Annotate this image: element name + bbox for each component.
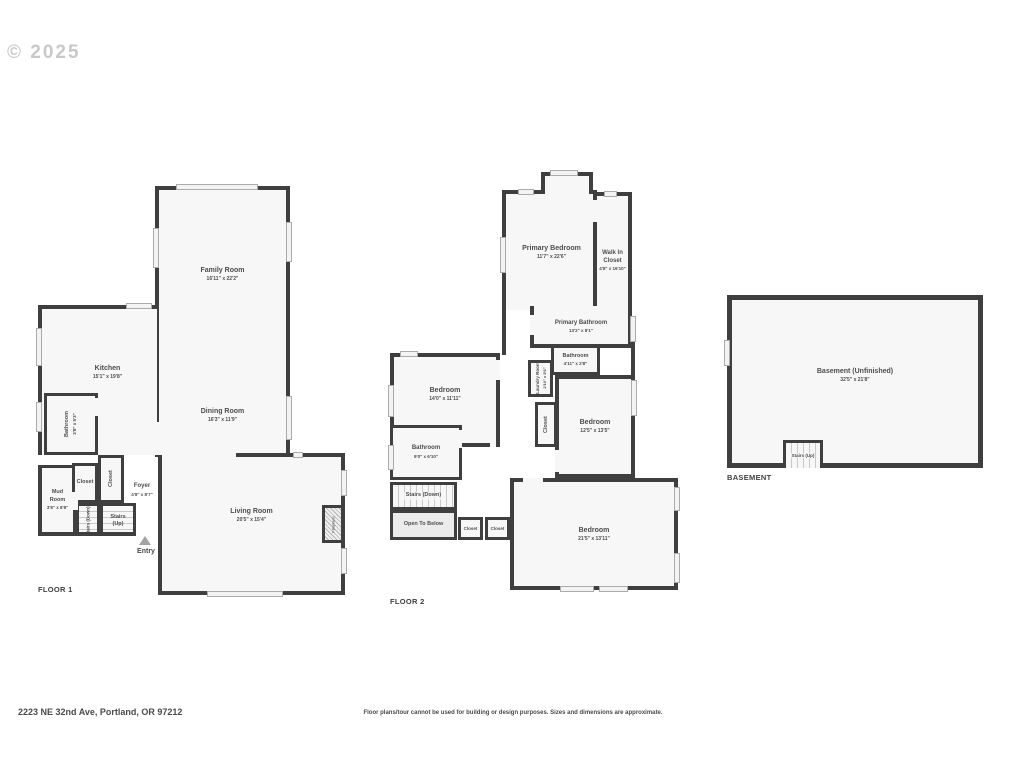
room-foyer: Foyer 4'8" x 8'7" [120, 483, 164, 498]
room-name: Primary Bathroom [555, 320, 607, 328]
floor2-label: FLOOR 2 [390, 597, 425, 606]
floor-plan-canvas: © 2025 Family Room 16'11" x 22'2" Dining… [0, 0, 1024, 768]
room-name: Open To Below [404, 521, 444, 528]
room-dims: 32'5" x 21'8" [817, 377, 893, 384]
room-name: Closet [107, 471, 114, 488]
wall-segment [502, 310, 506, 355]
room-closet-a-floor2: Closet [458, 517, 483, 540]
room-name: Closet [491, 526, 505, 532]
room-closet-hall-floor2: Closet [535, 402, 557, 447]
room-name: Dining Room [201, 407, 245, 416]
window [674, 487, 680, 511]
wall-segment [236, 453, 293, 457]
window [341, 470, 347, 496]
entry-arrow-icon [139, 536, 151, 545]
room-dims: 14'0" x 11'11" [429, 396, 461, 403]
door-opening [459, 430, 462, 448]
copyright-watermark: © 2025 [7, 42, 81, 64]
room-name: Bedroom [429, 386, 461, 395]
room-dims: 3'8" x 5'3" [72, 411, 78, 437]
door-opening [496, 360, 500, 380]
fireplace: Fireplace [322, 505, 344, 543]
room-dims: 13'2" x 8'1" [555, 328, 607, 334]
room-name: Living Room [230, 507, 272, 516]
room-bedroom-bottom: Bedroom 21'5" x 13'11" [510, 478, 678, 590]
room-name: Closet [77, 479, 94, 486]
basement-label: BASEMENT [727, 473, 772, 482]
window [293, 452, 303, 458]
window [604, 191, 617, 197]
room-dims: 12'5" x 13'5" [580, 428, 611, 435]
window [341, 548, 347, 574]
window [388, 385, 394, 417]
room-dims: 16'3" x 11'9" [201, 417, 245, 424]
window [560, 586, 594, 592]
room-dims: 4'11" x 2'8" [563, 361, 589, 367]
room-dims: 20'5" x 15'4" [230, 517, 272, 524]
room-name: Basement (Unfinished) [817, 367, 893, 376]
room-name: Mud Room [45, 489, 71, 503]
wall-segment [462, 443, 490, 447]
room-dims: 2'10" x 5'6" [541, 363, 546, 395]
room-dining-room: Dining Room 16'3" x 11'9" [155, 386, 290, 457]
room-dims: 21'5" x 13'11" [578, 536, 610, 543]
property-address: 2223 NE 32nd Ave, Portland, OR 97212 [18, 707, 182, 717]
room-living-room: Living Room 20'5" x 15'4" [158, 455, 345, 595]
room-dims: 4'8" x 16'10" [598, 266, 628, 272]
room-name: Family Room [201, 266, 245, 275]
window [286, 222, 292, 262]
door-opening [593, 200, 597, 222]
window [724, 340, 730, 366]
room-dims: 3'8" x 8'8" [45, 505, 71, 511]
room-closet-b-floor2: Closet [485, 517, 510, 540]
room-name: Bathroom [64, 411, 71, 437]
room-dims: 11'7" x 22'6" [522, 254, 581, 261]
room-dims: 4'8" x 8'7" [120, 492, 164, 498]
door-opening [155, 422, 159, 455]
room-name: Closet [464, 526, 478, 532]
room-dims: 15'1" x 19'8" [93, 374, 122, 381]
floor1-label: FLOOR 1 [38, 585, 73, 594]
door-opening [545, 190, 589, 194]
room-bedroom-right: Bedroom 12'5" x 13'5" [555, 375, 635, 478]
door-opening [93, 398, 99, 416]
room-name: Stairs (Up) [106, 514, 130, 528]
room-name: Stairs (Up) [792, 453, 815, 459]
room-name: Closet [542, 416, 549, 433]
door-opening [523, 478, 543, 482]
window [400, 351, 418, 357]
room-name: Bedroom [578, 526, 610, 535]
room-name: Primary Bedroom [522, 244, 581, 253]
window [36, 402, 42, 432]
window [388, 445, 394, 470]
door-opening [72, 492, 78, 510]
entry-label: Entry [128, 548, 164, 555]
window [36, 328, 42, 366]
room-name: Kitchen [93, 364, 122, 373]
window [500, 237, 506, 273]
room-stairs-up-basement: Stairs (Up) [783, 440, 823, 468]
room-bathroom-small-floor2: Bathroom 4'11" x 2'8" [551, 348, 600, 375]
room-bathroom-floor1: Bathroom 3'8" x 5'3" [44, 393, 98, 455]
wall-segment [301, 453, 345, 457]
fireplace-label: Fireplace [331, 516, 336, 532]
room-open-to-below: Open To Below [390, 510, 457, 540]
room-name: Foyer [120, 483, 164, 491]
room-dims: 16'11" x 22'2" [201, 276, 245, 283]
window [176, 184, 258, 190]
room-name: Bathroom [563, 353, 589, 360]
disclaimer-text: Floor plans/tour cannot be used for buil… [348, 710, 678, 716]
room-dims: 9'0" x 6'10" [412, 454, 440, 460]
room-name: Bedroom [580, 418, 611, 427]
room-bathroom-left-floor2: Bathroom 9'0" x 6'10" [390, 425, 462, 480]
window [518, 189, 534, 195]
room-name: Stairs (Down) [406, 492, 441, 499]
window [674, 553, 680, 583]
window [631, 380, 637, 416]
window [286, 396, 292, 440]
window [207, 591, 283, 597]
window [599, 586, 628, 592]
room-laundry: Laundry Room 2'10" x 5'6" [528, 360, 553, 397]
room-primary-bedroom: Primary Bedroom 11'7" x 22'6" [502, 190, 597, 310]
room-mud-room: Mud Room 3'8" x 8'8" [38, 465, 76, 536]
window [126, 303, 152, 309]
wall-segment [76, 532, 133, 536]
room-name: Walk In Closet [598, 250, 628, 266]
room-name: Laundry Room [534, 363, 540, 395]
room-primary-bathroom: Primary Bathroom 13'2" x 8'1" [530, 306, 632, 348]
window [153, 228, 159, 268]
window [550, 170, 578, 176]
room-family-room: Family Room 16'11" x 22'2" [155, 186, 290, 386]
door-opening [530, 315, 534, 335]
window [630, 316, 636, 342]
room-stairs-down-floor2: Stairs (Down) [390, 482, 457, 510]
door-opening [555, 450, 559, 472]
room-name: Bathroom [412, 445, 440, 453]
room-basement: Basement (Unfinished) 32'5" x 21'8" [727, 295, 983, 468]
